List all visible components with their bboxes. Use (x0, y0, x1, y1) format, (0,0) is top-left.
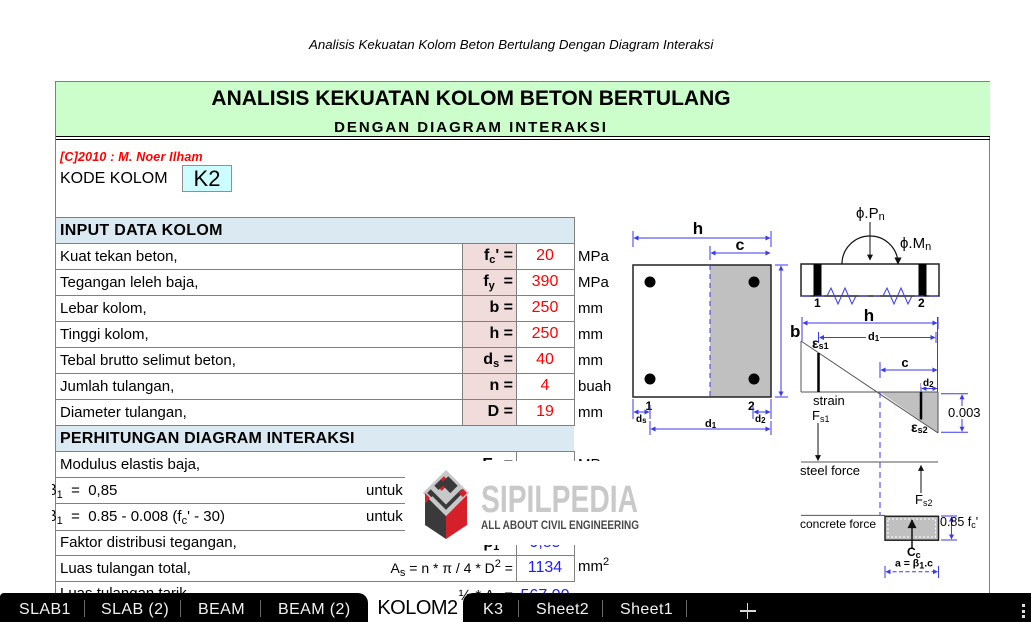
svg-text:strain: strain (813, 393, 845, 408)
svg-text:Fs1: Fs1 (812, 408, 829, 424)
svg-text:2: 2 (748, 399, 755, 413)
svg-text:h: h (693, 219, 703, 238)
svg-text:d2: d2 (755, 414, 766, 425)
svg-text:2: 2 (918, 296, 925, 310)
svg-text:1: 1 (646, 399, 653, 413)
svg-text:Fs2: Fs2 (915, 492, 932, 508)
svg-text:steel force: steel force (800, 463, 860, 478)
svg-text:0.003: 0.003 (948, 405, 981, 420)
svg-text:ϕ.Pn: ϕ.Pn (856, 205, 885, 223)
svg-text:d2: d2 (923, 378, 934, 389)
svg-text:1: 1 (814, 296, 821, 310)
svg-text:0.85 fc': 0.85 fc' (940, 515, 978, 530)
svg-text:ds: ds (636, 414, 647, 425)
svg-text:b: b (790, 322, 800, 341)
svg-text:ϕ.Mn: ϕ.Mn (900, 235, 931, 253)
svg-text:concrete force: concrete force (800, 517, 876, 531)
svg-text:d1: d1 (705, 418, 717, 430)
svg-text:c: c (736, 237, 745, 254)
svg-text:h: h (864, 306, 874, 325)
svg-text:a = β1.c: a = β1.c (895, 558, 933, 571)
svg-text:c: c (901, 355, 908, 370)
